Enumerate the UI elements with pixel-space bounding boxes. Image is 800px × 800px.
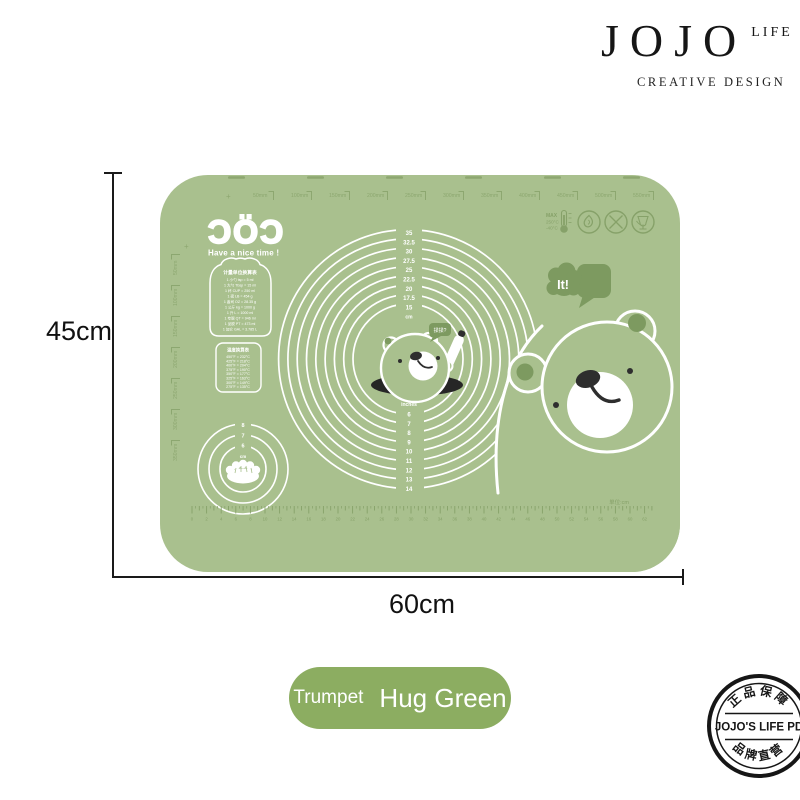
ruler-number: 26: [379, 517, 384, 522]
temperature-table-title: 温度换算表: [227, 347, 250, 354]
ruler-number: 2: [205, 517, 208, 522]
small-bear-inner-ear-left: [385, 338, 392, 345]
ring-inch-label: 13: [406, 478, 413, 484]
bear-inner-ear-left: [517, 364, 534, 381]
width-dimension-label: 60cm: [389, 589, 455, 620]
dumpling-icon: [226, 460, 260, 484]
ruler-number: 16: [306, 517, 311, 522]
top-ruler-label: 350mm: [481, 193, 498, 199]
bear-speech-text: 揉揉?: [434, 327, 447, 334]
ruler-number: 52: [569, 517, 574, 522]
ruler-number: 46: [525, 517, 530, 522]
ruler-number: 20: [336, 517, 341, 522]
left-ruler-label-group: 350mm: [172, 441, 181, 462]
product-page: { "brand": {"name": "JOJO", "suffix": "L…: [0, 0, 800, 800]
top-ruler-label: 450mm: [557, 193, 574, 199]
ruler-number: 12: [277, 517, 282, 522]
conversion-row: 1 公斤 kg = 1000 g: [225, 305, 255, 310]
ruler-number: 56: [598, 517, 603, 522]
mat-logo-tagline: Have a nice time !: [208, 249, 279, 258]
conversion-table-title: 计量单位换算表: [223, 269, 257, 276]
flame-icon: [578, 211, 600, 233]
conversion-row: 1 大勺 Tbsp = 15 ml: [224, 283, 256, 288]
left-ruler-label-group: 100mm: [172, 286, 181, 307]
mat-logo: ƆÖƆ Have a nice time !: [208, 214, 285, 258]
left-ruler-label-group: 150mm: [172, 317, 181, 338]
left-ruler-label: 250mm: [173, 382, 179, 399]
edge-tab: [386, 176, 403, 179]
left-ruler-label-group: 200mm: [172, 348, 181, 369]
food-safe-icon: [632, 211, 654, 233]
ring-cm-label: 15: [406, 305, 413, 311]
thermometer-icon: [560, 211, 571, 233]
variant-size-label: Trumpet: [293, 687, 363, 709]
left-ruler-label: 350mm: [173, 444, 179, 461]
ruler-number: 22: [350, 517, 355, 522]
corner-mark: [269, 192, 274, 201]
ring-cm-label: 32.5: [403, 240, 415, 246]
dumpling-ring-label: 8: [241, 423, 244, 429]
dim-horizontal-line: [112, 576, 684, 578]
conversion-row: 1 升 L = 1000 ml: [227, 310, 254, 315]
ruler-number: 58: [613, 517, 618, 522]
edge-tab: [307, 176, 324, 179]
ruler-number: 44: [511, 517, 516, 522]
plus-mark: +: [184, 242, 189, 251]
left-mm-labels: 50mm100mm150mm200mm250mm300mm350mm: [172, 255, 181, 462]
ring-cm-label: cm: [405, 315, 413, 321]
left-ruler-label-group: 300mm: [172, 410, 181, 431]
edge-tab: [623, 176, 640, 179]
ring-inch-label: 12: [406, 468, 413, 474]
bear-eye-right: [627, 368, 633, 374]
max-label: MAX: [546, 213, 558, 219]
max-temp-high: 250°C: [546, 220, 560, 225]
ring-cm-label: 30: [406, 250, 413, 256]
ring-cm-label: 35: [406, 231, 413, 237]
variant-color-label: Hug Green: [379, 683, 506, 714]
top-ruler-label: 100mm: [291, 193, 308, 199]
top-ruler-label: 300mm: [443, 193, 460, 199]
conversion-row: 1 品脱 PT = 473 ml: [225, 321, 256, 326]
dumpling-ring-label: cm: [240, 454, 247, 459]
top-ruler-label: 400mm: [519, 193, 536, 199]
ruler-number: 38: [467, 517, 472, 522]
ruler-number: 40: [482, 517, 487, 522]
conversion-row: 1 杯 CUP = 250 ml: [225, 288, 255, 293]
mat-artwork: + + 50mm100mm150mm200mm250mm300mm350mm40…: [160, 175, 680, 572]
baking-mat: + + 50mm100mm150mm200mm250mm300mm350mm40…: [160, 175, 680, 572]
temperature-table: 温度换算表 450°F = 232°C425°F = 218°C400°F = …: [216, 343, 261, 392]
ring-cm-label: 22.5: [403, 278, 415, 284]
plus-mark: +: [226, 192, 231, 201]
top-ruler-label: 150mm: [329, 193, 346, 199]
left-ruler-label: 200mm: [173, 351, 179, 368]
corner-mark: [172, 255, 181, 260]
ruler-number: 24: [365, 517, 370, 522]
small-bear-eye-left: [398, 359, 402, 363]
ruler-number: 28: [394, 517, 399, 522]
ruler-number: 54: [584, 517, 589, 522]
ruler-number: 30: [409, 517, 414, 522]
max-temp-low: -40°C: [546, 226, 558, 231]
conversion-row: 1 盎司 OZ = 28.35 g: [224, 299, 256, 304]
ruler-number: 62: [642, 517, 647, 522]
brand-name: JOJO: [601, 18, 747, 64]
ring-cm-label: 20: [406, 287, 413, 293]
brand-tagline: CREATIVE DESIGN: [637, 75, 800, 90]
top-ruler-label: 50mm: [253, 193, 267, 199]
dim-vertical-line: [112, 173, 114, 578]
ruler-number: 10: [263, 517, 268, 522]
ruler-number: 0: [191, 517, 194, 522]
speech-bubbles: It!: [547, 263, 612, 309]
top-ruler-label: 200mm: [367, 193, 384, 199]
ring-cm-label: 25: [406, 268, 413, 274]
ring-cm-label: 17.5: [403, 296, 415, 302]
bear-inner-ear-right: [628, 314, 646, 332]
no-cutting-icon: [605, 211, 627, 233]
left-ruler-label-group: 50mm: [172, 255, 181, 276]
ruler-number: 34: [438, 517, 443, 522]
left-ruler-label: 100mm: [173, 289, 179, 306]
ruler-number: 6: [235, 517, 238, 522]
ruler-number: 48: [540, 517, 545, 522]
conversion-row: 1 加仑 GAL = 3.785 L: [223, 327, 257, 332]
brand-logo: JOJO LIFE CREATIVE DESIGN: [601, 18, 800, 90]
ruler-number: 36: [452, 517, 457, 522]
dumpling-ring-label: 6: [241, 444, 244, 450]
edge-tab: [228, 176, 245, 179]
brand-suffix: LIFE: [751, 25, 793, 41]
top-ruler-label: 250mm: [405, 193, 422, 199]
ruler-number: 32: [423, 517, 428, 522]
left-ruler-label-group: 250mm: [172, 379, 181, 400]
ruler-number: 8: [249, 517, 252, 522]
ruler-number: 50: [555, 517, 560, 522]
unit-note: 单位:cm: [609, 498, 629, 506]
ring-inch-label: 11: [406, 459, 413, 465]
speech-bubble-solid: [577, 264, 611, 298]
ring-inch-label: 14: [406, 487, 413, 493]
top-ruler-label: 500mm: [595, 193, 612, 199]
speech-bubble-text: It!: [557, 278, 569, 292]
ruler-number: 60: [628, 517, 633, 522]
authenticity-stamp: 正品保障 JOJO'S LIFE PD 品牌直营: [703, 670, 800, 782]
ruler-number: 4: [220, 517, 223, 522]
bear-eye-left: [553, 402, 559, 408]
height-dimension-label: 45cm: [46, 316, 112, 347]
ring-inch-label: 10: [406, 450, 413, 456]
conversion-row: 1 磅 LB = 454 g: [227, 294, 252, 299]
small-bear-illustration: 揉揉?: [371, 323, 468, 402]
small-bear-eye-right: [436, 356, 440, 360]
conversion-table-rows: 1 小勺 tsp = 5 ml1 大勺 Tbsp = 15 ml1 杯 CUP …: [223, 277, 257, 332]
top-ruler-label: 550mm: [633, 193, 650, 199]
temperature-row: 275°F = 135°C: [226, 385, 250, 389]
conversion-row: 1 小勺 tsp = 5 ml: [227, 277, 254, 282]
dumpling-ring-label: 7: [241, 433, 244, 439]
temperature-table-rows: 450°F = 232°C425°F = 218°C400°F = 204°C3…: [226, 355, 250, 389]
left-ruler-label: 150mm: [173, 320, 179, 337]
stamp-center-text: JOJO'S LIFE PD: [715, 722, 800, 734]
care-icons: MAX 250°C -40°C: [546, 211, 654, 234]
top-mm-labels: 50mm100mm150mm200mm250mm300mm350mm400mm4…: [253, 192, 654, 201]
ring-cm-label: 27.5: [403, 259, 415, 265]
edge-tab: [544, 176, 561, 179]
edge-tab: [465, 176, 482, 179]
left-ruler-label: 50mm: [173, 261, 179, 275]
brand-row: JOJO LIFE: [601, 18, 800, 64]
ruler-number: 18: [321, 517, 326, 522]
conversion-table: 计量单位换算表 1 小勺 tsp = 5 ml1 大勺 Tbsp = 15 ml…: [210, 258, 271, 336]
big-bear-illustration: [496, 306, 680, 572]
dim-right-cap: [682, 569, 684, 585]
dumpling-circles: 876cm: [198, 419, 288, 514]
conversion-row: 1 夸脱 QT = 946 ml: [225, 316, 256, 321]
ruler-number: 42: [496, 517, 501, 522]
variant-pill: Trumpet Hug Green: [289, 667, 511, 729]
ruler-number: 14: [292, 517, 297, 522]
mat-logo-text: ƆÖƆ: [208, 214, 285, 250]
left-ruler-label: 300mm: [173, 413, 179, 430]
